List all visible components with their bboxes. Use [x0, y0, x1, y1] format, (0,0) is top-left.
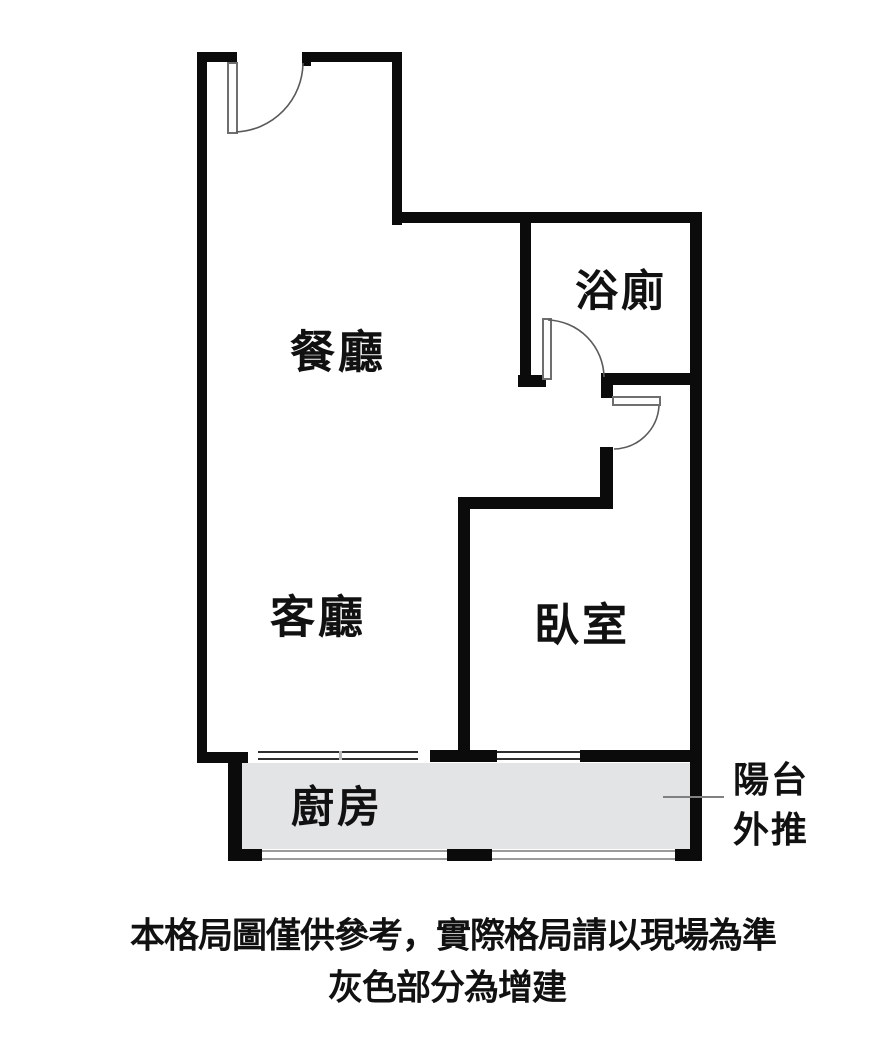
- balcony-pointer-line: [663, 796, 724, 798]
- bedroom-window: [497, 751, 580, 760]
- wall-living-bottom-mid: [430, 750, 497, 762]
- room-label-living: 客廳: [270, 581, 366, 646]
- entry-door-arc: [236, 63, 303, 132]
- door-swing-arcs: [0, 0, 889, 1043]
- wall-right-exterior: [690, 212, 702, 861]
- wall-dining-right: [392, 52, 402, 225]
- wall-balcony-bottom-mid: [447, 849, 492, 861]
- wall-balcony-left: [228, 752, 242, 860]
- footer-disclaimer-line2: 灰色部分為增建: [328, 960, 566, 1011]
- balcony-annotation-line2: 外推: [733, 805, 809, 855]
- room-label-bathroom: 浴廁: [575, 257, 667, 319]
- window-mullion: [339, 751, 342, 760]
- balcony-window-left: [262, 850, 447, 860]
- floor-plan: 餐廳 浴廁 客廳 臥室 廚房 陽台 外推 本格局圖僅供參考，實際格局請以現場為準…: [0, 0, 889, 1043]
- bathroom-door-arc: [548, 320, 604, 377]
- footer-disclaimer-line1: 本格局圖僅供參考，實際格局請以現場為準: [130, 908, 776, 959]
- living-room-window: [258, 751, 418, 760]
- wall-bathroom-bottom-right: [603, 373, 702, 385]
- room-label-bedroom: 臥室: [534, 589, 630, 654]
- bathroom-door-leaf: [542, 318, 552, 380]
- wall-bedroom-bottom: [580, 750, 690, 762]
- wall-bathroom-left: [520, 223, 531, 387]
- room-label-kitchen: 廚房: [291, 773, 383, 835]
- bedroom-door-jamb: [601, 373, 613, 398]
- wall-balcony-bottom-right-corner: [675, 849, 702, 861]
- balcony-annotation-line1: 陽台: [733, 755, 809, 805]
- balcony-annotation: 陽台 外推: [733, 755, 809, 856]
- wall-balcony-bottom-left-corner: [228, 849, 262, 861]
- wall-living-bedroom-divider: [458, 497, 470, 760]
- wall-left-exterior: [197, 52, 207, 763]
- wall-bathroom-top: [392, 212, 702, 223]
- wall-top-right: [303, 52, 402, 62]
- bedroom-door-arc: [614, 406, 659, 449]
- balcony-window-right: [492, 850, 675, 860]
- entry-door-leaf: [227, 62, 238, 134]
- bedroom-door-leaf: [612, 396, 661, 406]
- wall-bedroom-top: [458, 497, 613, 509]
- room-label-dining: 餐廳: [290, 316, 386, 381]
